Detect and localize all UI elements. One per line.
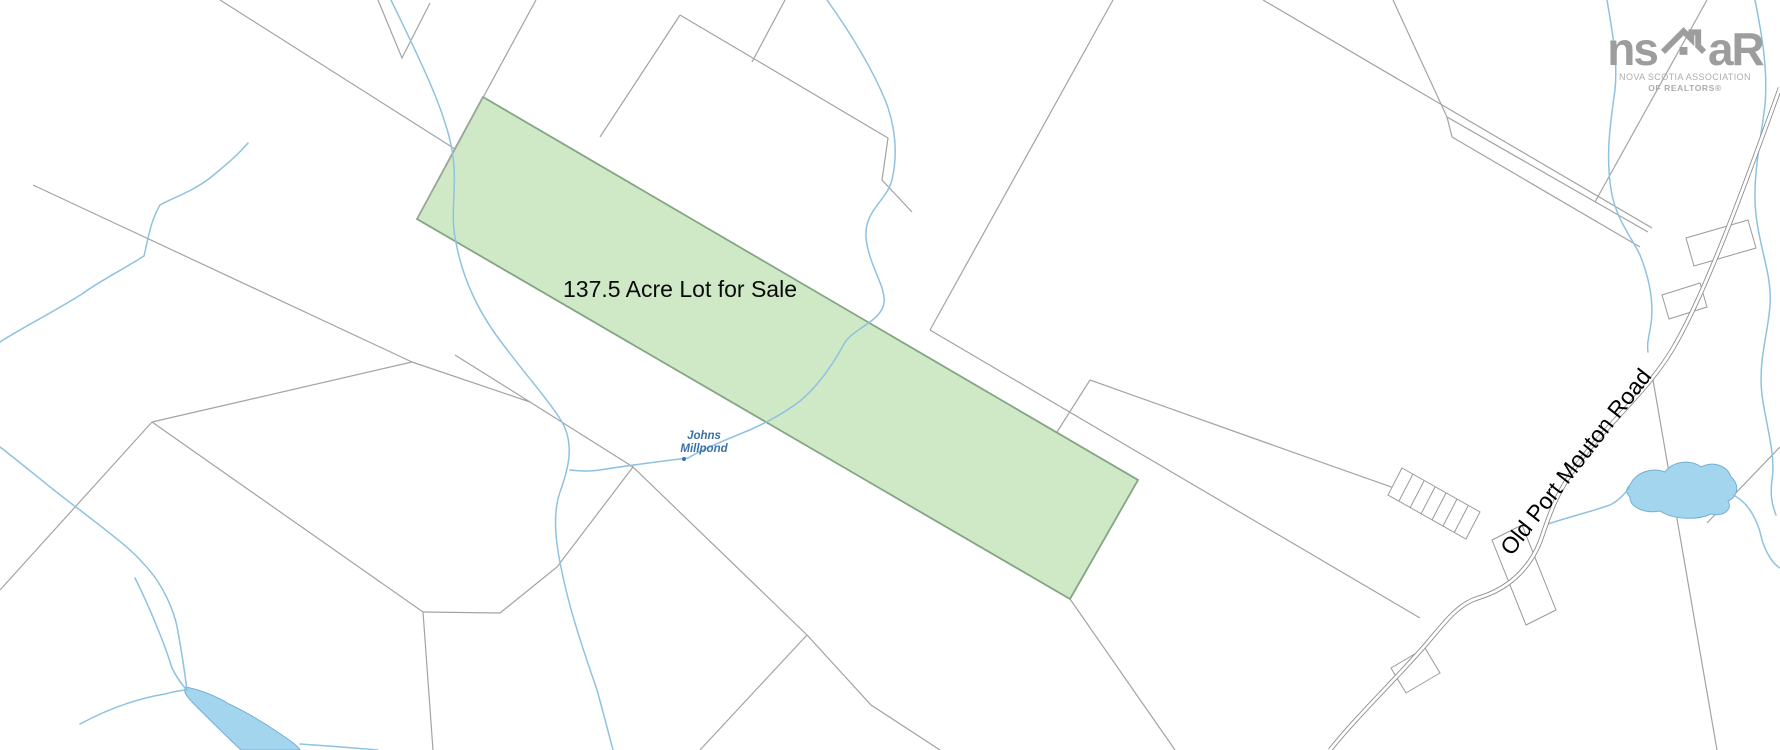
- stream: [80, 690, 187, 724]
- nsar-logo-subtitle2: OF REALTORS®: [1600, 83, 1770, 93]
- highlighted-parcel: [417, 97, 1138, 599]
- parcel-boundary-line: [700, 635, 807, 750]
- parcel-boundary-line: [1263, 0, 1652, 228]
- parcel-boundary-line: [152, 422, 423, 612]
- parcel-boundary-line: [600, 15, 680, 137]
- map-canvas: 137.5 Acre Lot for Sale Johns Millpond O…: [0, 0, 1780, 750]
- millpond-point-marker: [682, 457, 686, 461]
- lot-rectangle: [1662, 283, 1707, 319]
- stream: [0, 143, 248, 342]
- parcel-boundary-line: [1447, 117, 1648, 247]
- pond: [1627, 462, 1737, 518]
- lot-for-sale-label: 137.5 Acre Lot for Sale: [563, 276, 797, 303]
- parcel-boundary-line: [1653, 380, 1717, 750]
- parcel-boundary-line: [33, 185, 412, 362]
- parcel-boundary-line: [412, 362, 530, 402]
- nsar-logo-subtitle: NOVA SCOTIA ASSOCIATION: [1600, 72, 1770, 82]
- parcel-boundary-line: [680, 15, 912, 212]
- parcel-boundary-line: [152, 362, 412, 422]
- parcel-map: [0, 0, 1780, 750]
- stream: [300, 744, 378, 750]
- road-old-port-mouton: [1330, 88, 1780, 750]
- parcel-boundary-line: [423, 612, 500, 613]
- nsar-logo-ar: aR: [1708, 30, 1763, 69]
- johns-millpond-label-line2: Millpond: [648, 443, 760, 456]
- parcel-boundary-line: [752, 0, 785, 62]
- parcel-boundary-line: [1070, 599, 1175, 750]
- johns-millpond-label-line1: Johns: [648, 430, 760, 443]
- parcel-boundary-line: [0, 422, 152, 590]
- parcel-boundary-line: [1057, 380, 1090, 432]
- road-inner: [1330, 88, 1780, 750]
- stream: [135, 578, 187, 690]
- parcel-boundary-line: [378, 0, 430, 58]
- pond: [185, 687, 300, 750]
- parcel-boundary-line: [1393, 0, 1447, 117]
- parcel-boundary-line: [1090, 380, 1428, 500]
- nsar-logo: ns aR NOVA SCOTIA ASSOCIATION OF REALTOR…: [1600, 26, 1770, 93]
- road-casing: [1330, 88, 1780, 750]
- house-icon: [1660, 26, 1707, 68]
- nsar-logo-ns: ns: [1607, 30, 1657, 69]
- parcel-boundary-line: [423, 612, 433, 750]
- nsar-logo-wordmark: ns aR: [1600, 26, 1770, 69]
- parcel-boundary-line: [930, 0, 1113, 330]
- parcel-boundary-line: [807, 635, 940, 750]
- johns-millpond-label: Johns Millpond: [648, 430, 760, 456]
- small-lot-strip: [1388, 468, 1480, 539]
- stream: [0, 447, 187, 690]
